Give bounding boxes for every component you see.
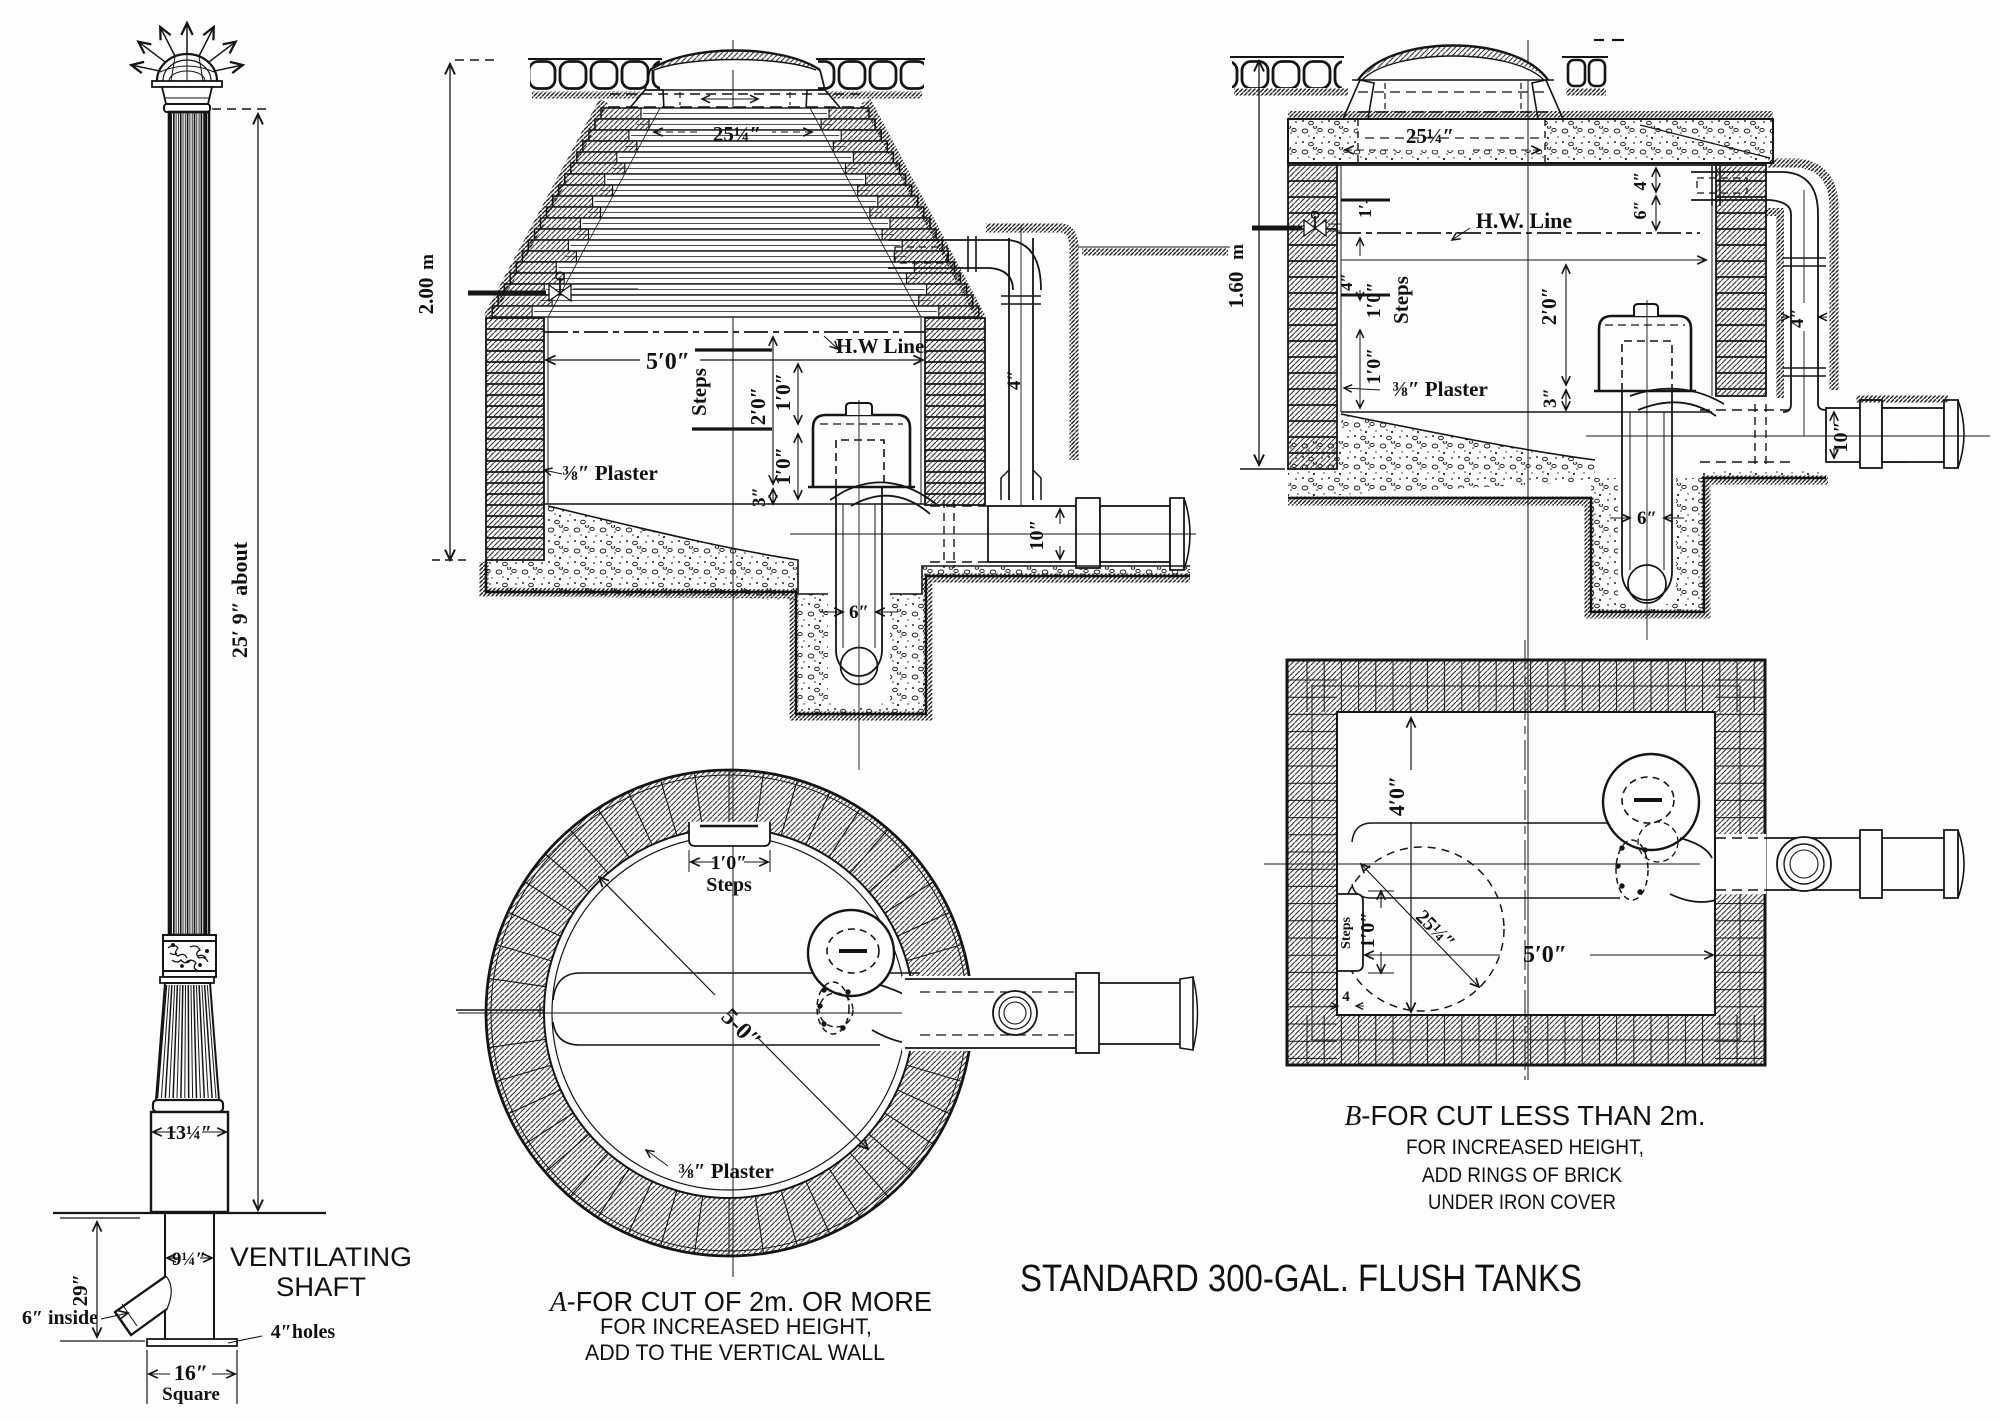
svg-text:FOR INCREASED HEIGHT,: FOR INCREASED HEIGHT, [600,1314,872,1339]
svg-text:1′0″: 1′0″ [1363,282,1385,319]
svg-text:VENTILATING: VENTILATING [230,1242,412,1272]
svg-text:4″: 4″ [1337,273,1356,291]
svg-text:4″: 4″ [1004,370,1025,390]
svg-text:⅜″ Plaster: ⅜″ Plaster [678,1159,774,1183]
svg-text:1′0″: 1′0″ [771,373,795,412]
svg-text:4: 4 [1342,989,1350,1005]
svg-text:4″: 4″ [1787,308,1808,328]
svg-text:1.60: 1.60 [1224,272,1248,309]
svg-text:Steps: Steps [687,368,711,416]
svg-text:6″: 6″ [849,602,869,623]
svg-text:Steps: Steps [1389,276,1413,324]
svg-text:2′0″: 2′0″ [1537,287,1561,326]
svg-text:5′0″: 5′0″ [646,349,690,375]
svg-text:H.W. Line: H.W. Line [1476,208,1573,233]
svg-text:25¼″: 25¼″ [713,122,761,146]
svg-text:6″: 6″ [1637,508,1657,529]
svg-text:4′0″: 4′0″ [1384,776,1409,816]
svg-text:Steps: Steps [706,874,752,896]
svg-text:ADD RINGS OF BRICK: ADD RINGS OF BRICK [1422,1164,1622,1187]
svg-text:25¼″: 25¼″ [1406,124,1454,148]
svg-text:Steps: Steps [1339,917,1354,949]
svg-text:1′-: 1′- [1355,198,1375,218]
svg-text:m: m [1227,244,1248,260]
svg-text:1′0″: 1′0″ [1357,912,1379,949]
svg-text:13¼″: 13¼″ [166,1122,212,1144]
svg-text:10″: 10″ [1026,519,1048,550]
svg-text:SHAFT: SHAFT [276,1272,366,1302]
svg-text:4″holes: 4″holes [271,1321,336,1343]
svg-text:B-FOR CUT LESS THAN 2m.: B-FOR CUT LESS THAN 2m. [1345,1100,1706,1132]
svg-text:UNDER IRON COVER: UNDER IRON COVER [1428,1191,1616,1214]
svg-text:FOR INCREASED HEIGHT,: FOR INCREASED HEIGHT, [1406,1136,1644,1159]
svg-text:4″: 4″ [1630,172,1650,191]
svg-text:2.00: 2.00 [414,278,438,315]
svg-text:m: m [417,254,438,270]
svg-text:6″ inside: 6″ inside [22,1307,98,1329]
svg-text:9¼″: 9¼″ [172,1249,206,1270]
svg-text:⅜″ Plaster: ⅜″ Plaster [562,461,658,485]
svg-text:Square: Square [162,1384,220,1405]
svg-text:16″: 16″ [174,1360,208,1385]
svg-text:1′0″: 1′0″ [771,447,795,486]
svg-text:10″: 10″ [1830,421,1852,452]
svg-text:2′0″: 2′0″ [746,387,770,426]
svg-text:5′0″: 5′0″ [1523,942,1567,968]
svg-text:3″: 3″ [749,487,770,507]
svg-text:H.W Line: H.W Line [836,334,924,358]
svg-text:ADD TO THE VERTICAL WALL: ADD TO THE VERTICAL WALL [585,1340,885,1365]
svg-text:25′ 9″ about: 25′ 9″ about [227,541,252,658]
svg-text:3″: 3″ [1540,388,1561,408]
svg-text:⅜″ Plaster: ⅜″ Plaster [1392,377,1488,401]
svg-text:6″: 6″ [1630,201,1650,220]
svg-text:1′0″: 1′0″ [1363,348,1385,385]
svg-text:1′0″: 1′0″ [711,852,748,874]
svg-text:STANDARD 300-GAL. FLUSH TAN: STANDARD 300-GAL. FLUSH TANKS [1020,1258,1582,1300]
svg-text:29″: 29″ [68,1274,92,1307]
